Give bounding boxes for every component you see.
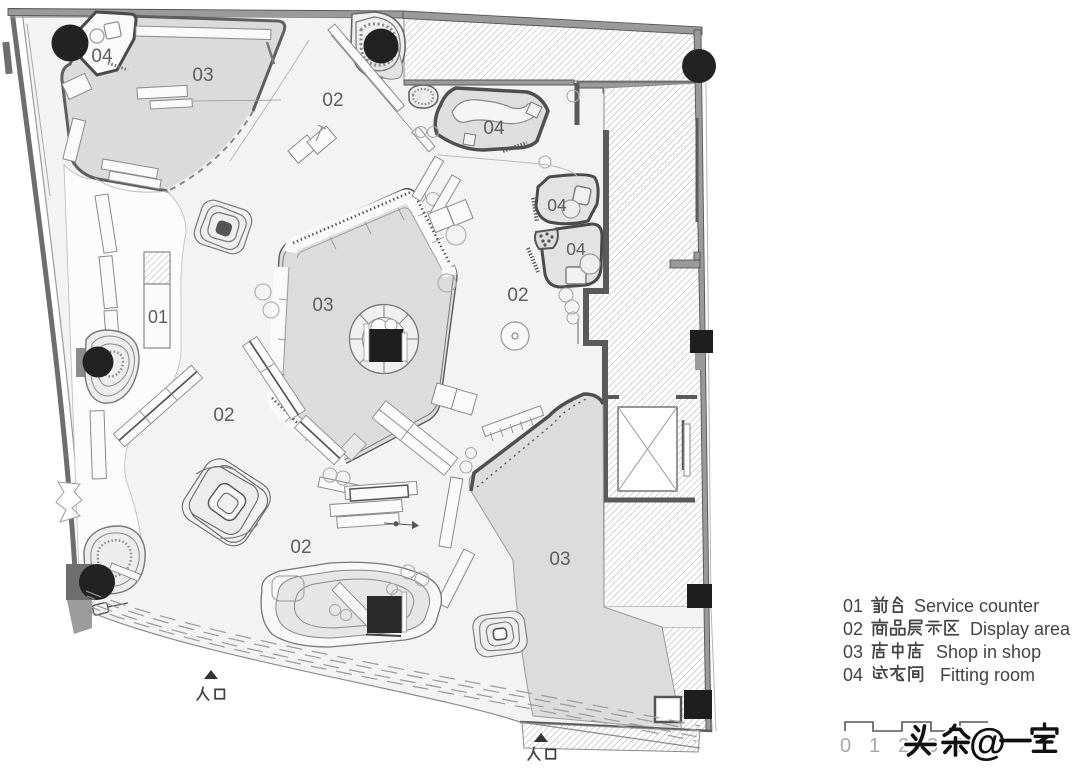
svg-text:02: 02 <box>290 537 311 558</box>
svg-text:01: 01 <box>843 596 863 616</box>
svg-text:03: 03 <box>312 295 333 316</box>
svg-text:0: 0 <box>840 735 851 757</box>
svg-text:03: 03 <box>192 65 213 86</box>
svg-text:04: 04 <box>91 46 113 67</box>
svg-text:03: 03 <box>549 549 570 570</box>
svg-text:04: 04 <box>843 665 863 685</box>
svg-text:02: 02 <box>843 619 863 639</box>
svg-text:03: 03 <box>843 642 863 662</box>
svg-text:1: 1 <box>869 735 880 757</box>
svg-text:Fitting room: Fitting room <box>940 665 1035 685</box>
svg-text:04: 04 <box>547 195 567 215</box>
svg-text:02: 02 <box>322 90 343 111</box>
svg-text:02: 02 <box>213 405 234 426</box>
svg-text:04: 04 <box>566 239 586 259</box>
svg-text:01: 01 <box>148 307 168 327</box>
svg-text:Display area: Display area <box>970 619 1071 639</box>
svg-text:02: 02 <box>507 285 528 306</box>
svg-text:04: 04 <box>483 118 505 139</box>
svg-text:Service counter: Service counter <box>914 596 1039 616</box>
svg-text:@: @ <box>969 722 1006 764</box>
svg-text:Shop in shop: Shop in shop <box>936 642 1041 662</box>
